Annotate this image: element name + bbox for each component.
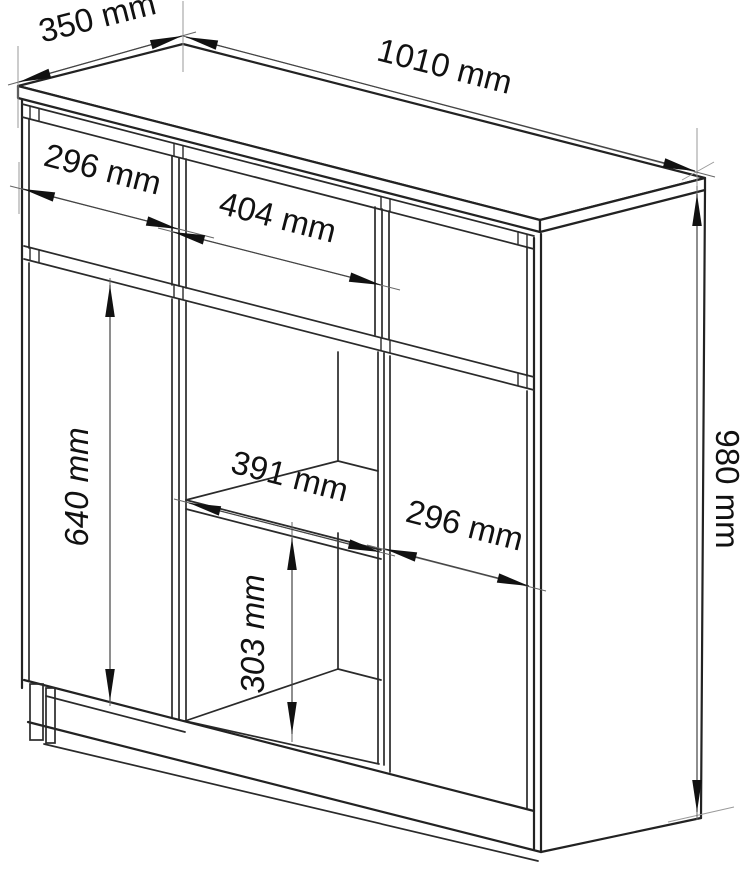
cabinet-base — [24, 680, 541, 861]
dim-label-lower-opening-height: 303 mm — [234, 574, 271, 693]
open-compartment-interior — [185, 352, 381, 764]
cabinet-right-side-panel — [534, 190, 705, 852]
dim-label-top-depth: 350 mm — [35, 0, 160, 50]
dim-label-left-door-height: 640 mm — [58, 427, 95, 546]
dim-label-left-drawer-width: 296 mm — [41, 136, 166, 201]
dimension-diagram: 350 mm 1010 mm 296 mm 404 mm 391 mm 296 … — [0, 0, 744, 884]
cabinet-drawing: 350 mm 1010 mm 296 mm 404 mm 391 mm 296 … — [0, 0, 744, 884]
dim-line-middle-drawer-width — [173, 232, 381, 285]
cabinet-top-face — [18, 44, 705, 220]
door-top-groove — [24, 246, 534, 390]
front-left-leg — [30, 684, 43, 740]
dim-label-total-height: 980 mm — [709, 429, 744, 548]
dim-label-right-door-width: 296 mm — [403, 492, 528, 557]
dim-label-shelf-width: 391 mm — [228, 443, 353, 508]
dim-label-top-width: 1010 mm — [374, 31, 516, 101]
dim-line-shelf-width — [189, 503, 380, 552]
